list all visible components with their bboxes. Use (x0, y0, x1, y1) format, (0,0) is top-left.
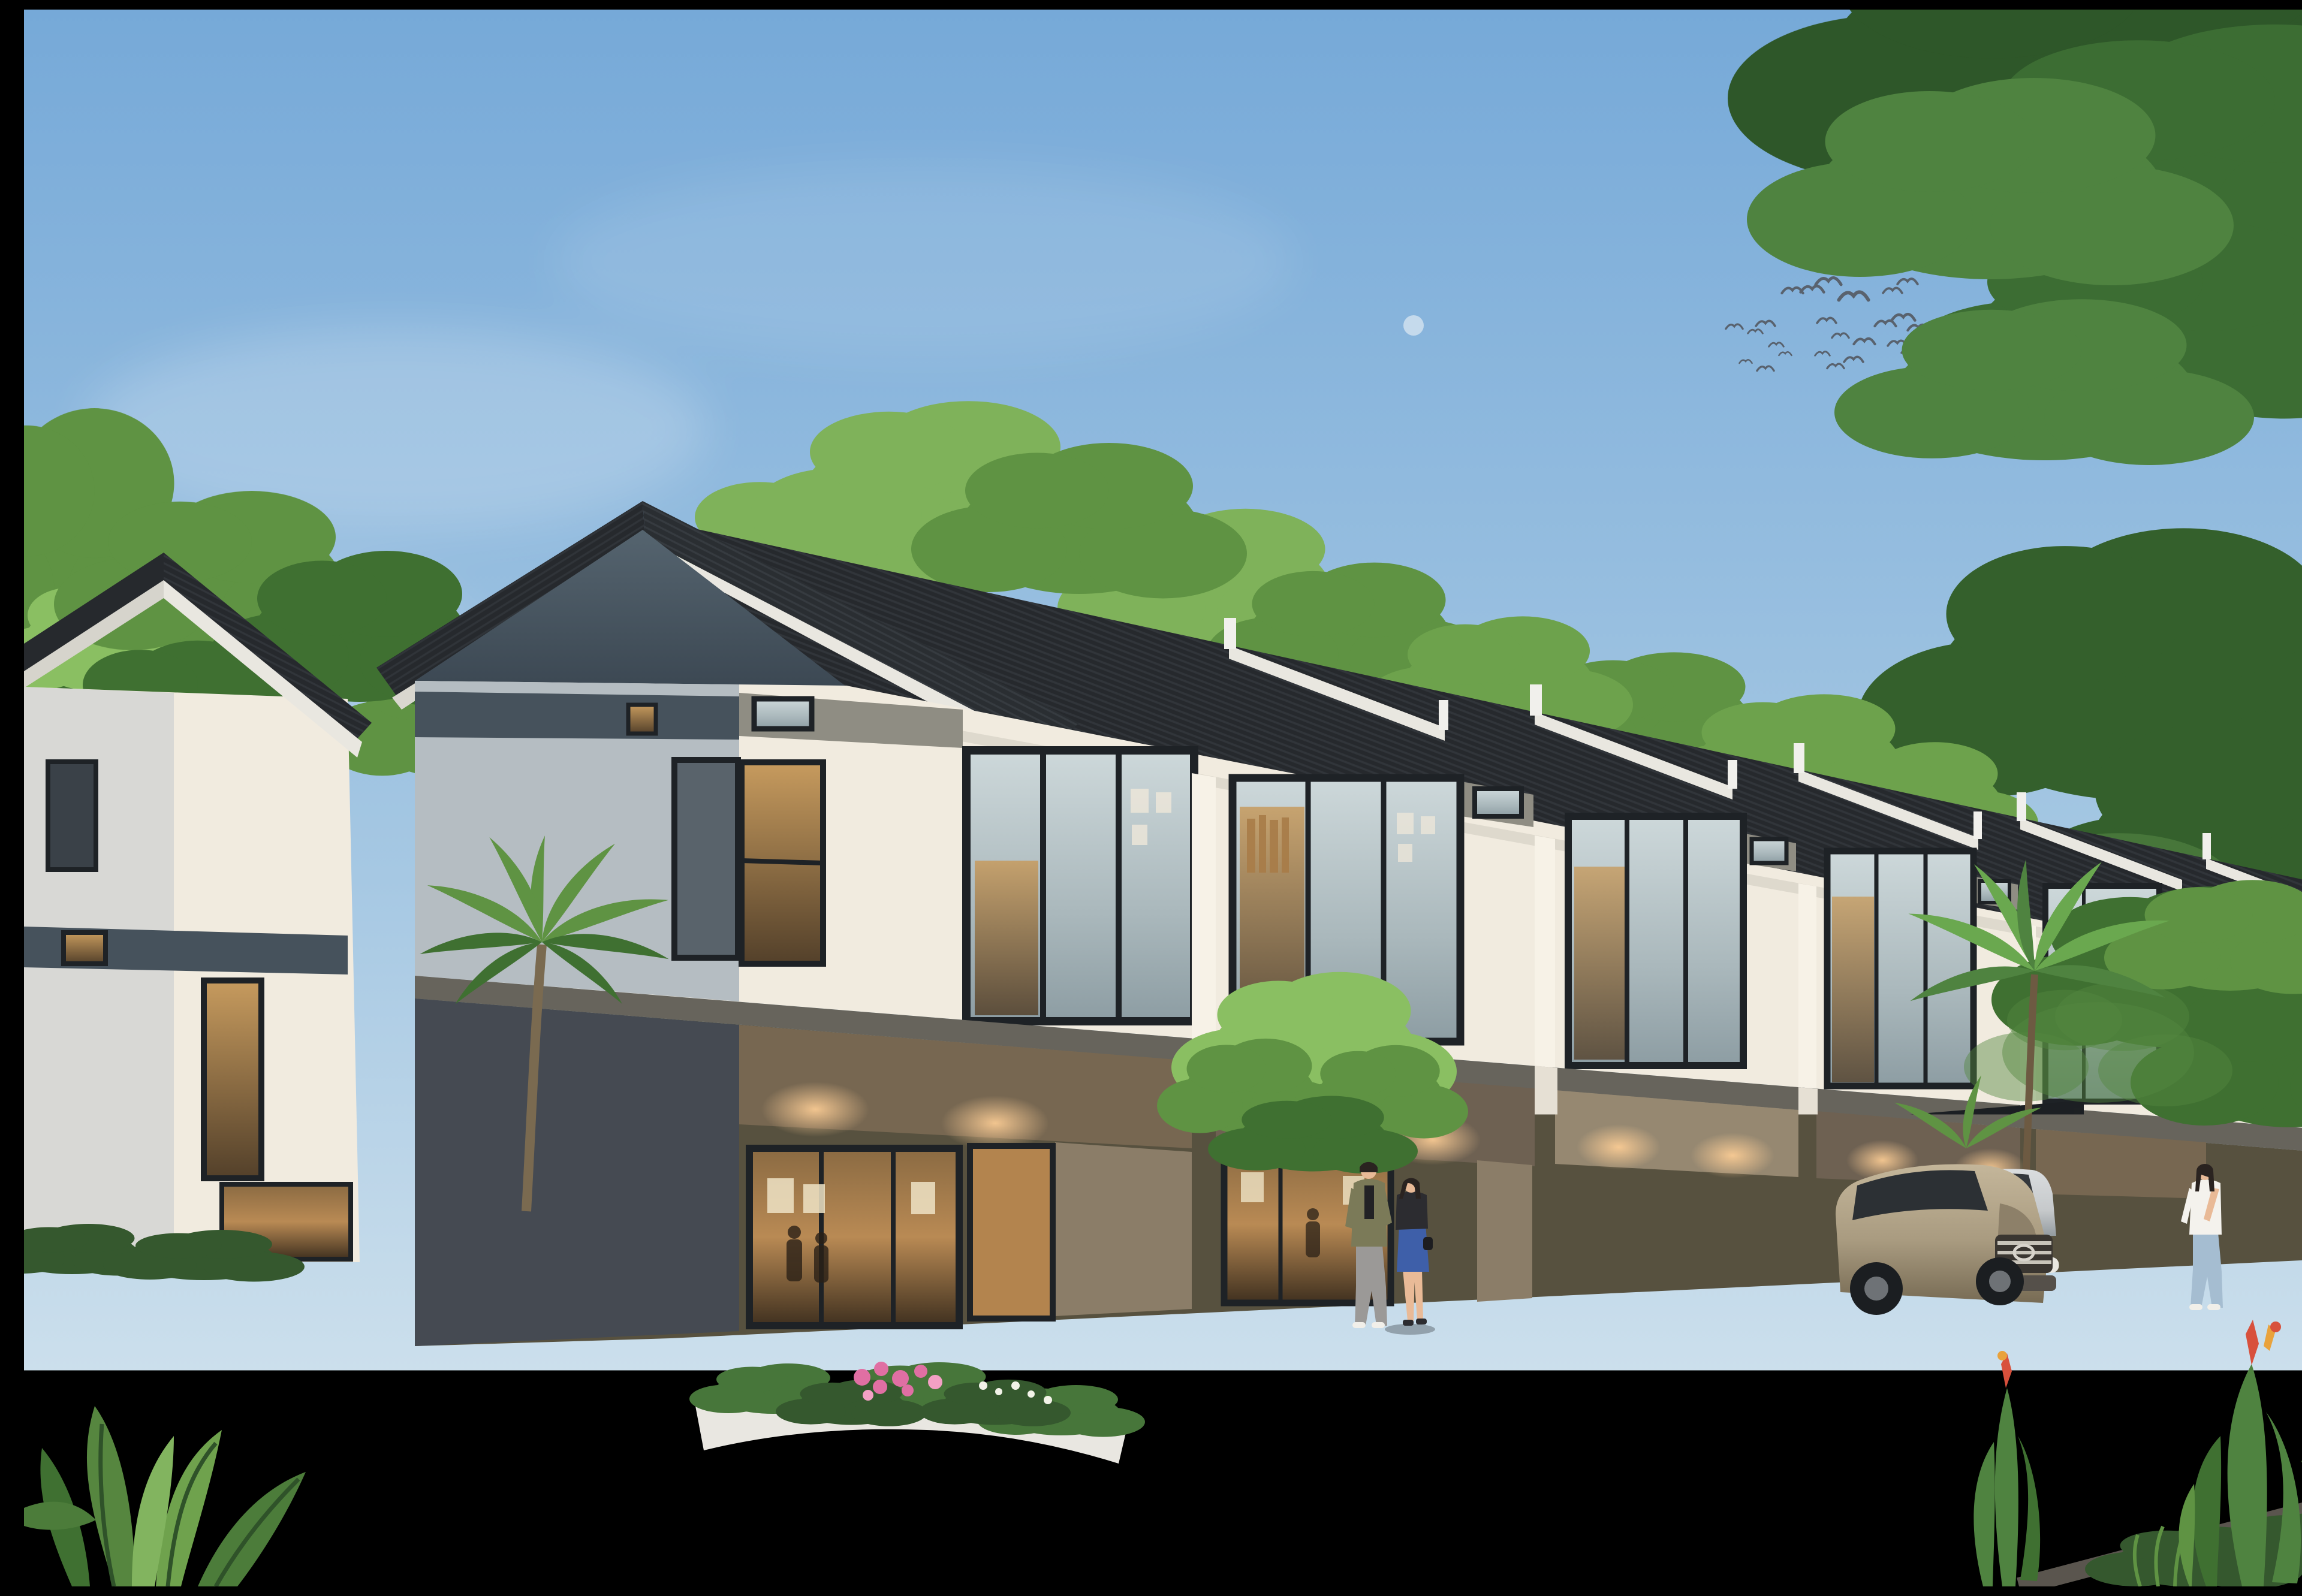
end-house-tall-window (204, 980, 261, 1178)
end-house-upper-window (48, 762, 96, 870)
corner-window (674, 760, 823, 964)
front-band-u2-window (1475, 789, 1521, 816)
moon (1403, 315, 1424, 336)
upper-window-u4 (1827, 851, 1973, 1086)
end-house-band-window (64, 933, 106, 964)
front-band-u1-window (754, 699, 812, 729)
upper-window-u1 (966, 750, 1194, 1021)
scene-canvas (24, 10, 2302, 1586)
mint-kei-car (1506, 1187, 1815, 1400)
side-band-window (628, 705, 656, 734)
architectural-rendering (24, 10, 2302, 1586)
front-band-u3-window (1752, 839, 1786, 863)
tan-minivan (1834, 1164, 2062, 1320)
upper-window-u3 (1568, 816, 1743, 1066)
side-band (415, 692, 739, 740)
